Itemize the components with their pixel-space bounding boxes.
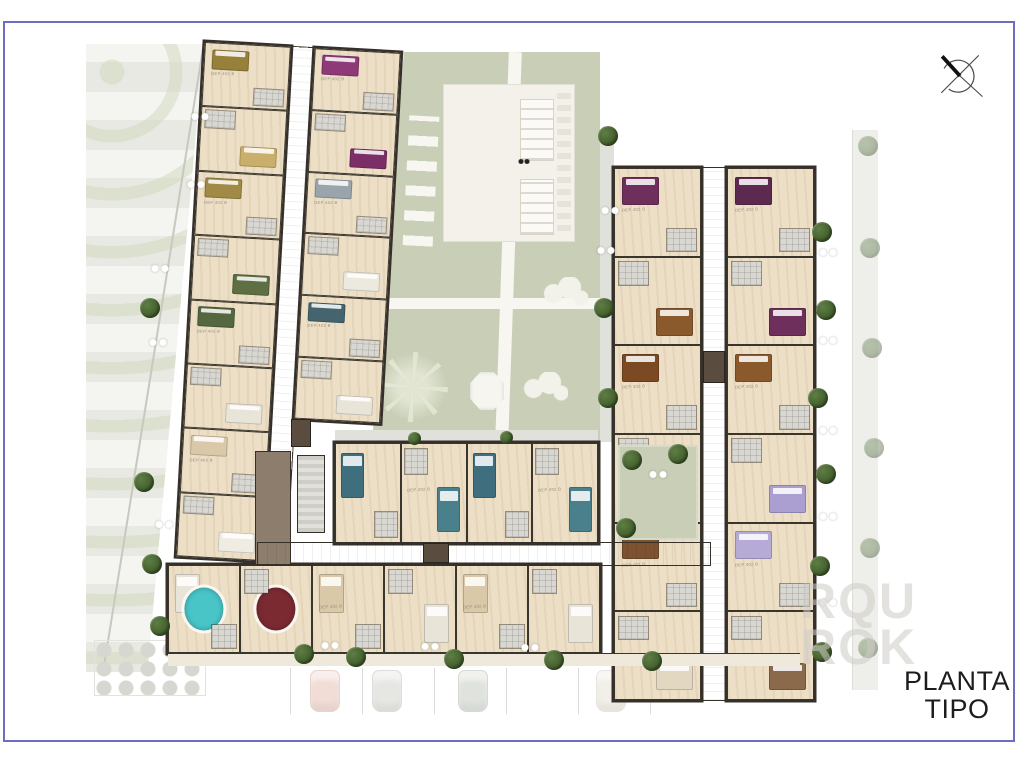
apartment-unit [614, 257, 701, 346]
bed [656, 308, 693, 336]
apartment-unit [183, 363, 272, 432]
balcony-chairs-icon [600, 206, 620, 215]
unit-label: DEP 402 B [189, 457, 212, 462]
amenity-terrace [443, 84, 575, 242]
bathroom-tile [198, 239, 227, 257]
tree-icon [642, 651, 662, 671]
bed [568, 604, 593, 644]
apartment-unit: DEP 402 B [401, 443, 467, 543]
tree-icon [860, 238, 880, 258]
door-markers [518, 159, 530, 164]
bathroom-tile [732, 439, 761, 462]
bathroom-tile [302, 361, 331, 378]
elevator-core [704, 352, 724, 382]
round-rug [256, 588, 295, 631]
bathroom-tile [536, 449, 558, 474]
apartment-unit: DEP 402 B [614, 168, 701, 257]
apartment-unit [301, 233, 390, 300]
stepping-stones [403, 115, 440, 246]
bathroom-tile [667, 406, 696, 429]
bottom-inner-unit-row: DEP 402 BDEP 402 B [335, 443, 598, 543]
apartment-unit: DEP 402 B [532, 443, 598, 543]
unit-label: DEP 402 B [735, 207, 759, 213]
floor-plan-sheet: DEP 402 BDEP 402 BDEP 402 BDEP 402 B DEP… [0, 0, 1024, 768]
tree-icon [812, 222, 832, 242]
bed [239, 146, 277, 168]
bed [211, 49, 249, 71]
tree-icon [816, 464, 836, 484]
apartment-unit [198, 106, 287, 175]
bathroom-tile [350, 340, 379, 357]
unit-label: DEP 402 B [622, 384, 646, 390]
balcony-chairs-icon [190, 112, 210, 121]
bathroom-tile [533, 570, 557, 592]
apartment-unit [240, 565, 312, 653]
balcony-chairs-icon [154, 520, 174, 529]
bed [218, 531, 256, 553]
bed [769, 308, 806, 336]
corridor [701, 168, 727, 700]
bed [190, 435, 228, 457]
bed [343, 271, 381, 292]
tree-icon [668, 444, 688, 464]
apartment-unit [727, 257, 814, 346]
bathroom-tile [667, 229, 696, 252]
apartment-unit [528, 565, 600, 653]
elevator-core [424, 544, 448, 562]
tree-icon [864, 438, 884, 458]
apartment-unit [168, 565, 240, 653]
bathroom-tile [315, 114, 344, 131]
bed [307, 302, 345, 323]
tree-icon [862, 338, 882, 358]
apartment-unit: DEP 402 B [727, 168, 814, 257]
apartment-unit: DEP 402 B [456, 565, 528, 653]
balcony-chairs-icon [596, 246, 616, 255]
bathroom-tile [364, 93, 393, 110]
bed [569, 487, 592, 532]
elevator-core [292, 420, 310, 446]
watermark: RQU ROK [800, 578, 917, 670]
apartment-unit: DEP 402 B [312, 565, 384, 653]
balcony-chairs-icon [186, 180, 206, 189]
car-ghost [310, 670, 340, 712]
unit-label: DEP 402 B [622, 207, 646, 213]
west-unit-column: DEP 402 BDEP 402 BDEP 402 B [614, 168, 701, 700]
tree-icon [860, 538, 880, 558]
bed [350, 148, 388, 169]
bed [437, 487, 460, 532]
unit-label: DEP 402 B [462, 603, 486, 609]
bed [735, 354, 772, 382]
tree-icon [616, 518, 636, 538]
apartment-unit [335, 443, 401, 543]
unit-label: DEP 402 B [307, 323, 330, 328]
round-rug [184, 588, 223, 631]
bathroom-tile [506, 512, 528, 537]
tree-icon [808, 388, 828, 408]
balcony-chairs-icon [420, 642, 440, 651]
bathroom-tile [389, 570, 413, 592]
tree-icon [544, 650, 564, 670]
bed [341, 453, 364, 498]
unit-label: DEP 402 B [735, 561, 759, 567]
unit-label: DEP 402 B [314, 200, 337, 205]
apartment-unit: DEP 402 B [298, 295, 387, 362]
bathroom-tile [191, 368, 220, 386]
terrace-table [520, 179, 554, 235]
balcony-chairs-icon [818, 336, 838, 345]
tree-icon [142, 554, 162, 574]
gazebo [470, 372, 504, 410]
bathroom-tile [184, 496, 213, 514]
page-title-line2: TIPO [898, 696, 1016, 724]
bed [735, 531, 772, 559]
unit-label: DEP 402 B [538, 487, 562, 493]
tree-icon [294, 644, 314, 664]
unit-label: DEP 402 B [211, 71, 234, 76]
tree-icon [444, 649, 464, 669]
bathroom-tile [780, 406, 809, 429]
bed [735, 177, 772, 205]
unit-label: DEP 402 B [318, 603, 342, 609]
tree-icon [500, 431, 513, 444]
apartment-unit: DEP 402 B [187, 299, 276, 368]
north-compass-icon [930, 46, 990, 106]
balcony-chairs-icon [150, 264, 170, 273]
tree-icon [858, 136, 878, 156]
apartment-unit [308, 110, 397, 177]
unit-label: DEP 402 B [204, 200, 227, 205]
tree-icon [134, 472, 154, 492]
tree-icon [140, 298, 160, 318]
bathroom-tile [239, 346, 268, 364]
balcony-chairs-icon [818, 426, 838, 435]
bed [424, 604, 449, 644]
bathroom-tile [254, 89, 283, 107]
watermark-line1: RQU [800, 578, 917, 624]
apartment-unit: DEP 402 B [194, 171, 283, 240]
bed [769, 485, 806, 513]
balcony-chairs-icon [818, 512, 838, 521]
terrace-table [520, 99, 554, 161]
apartment-unit [191, 235, 280, 304]
apartment-unit: DEP 402 B [614, 345, 701, 434]
bed [656, 663, 693, 691]
unit-label: DEP 402 B [197, 329, 220, 334]
bathroom-tile [309, 238, 338, 255]
unit-label: DEP 402 B [735, 384, 759, 390]
car-ghost [372, 670, 402, 712]
bathroom-tile [732, 262, 761, 285]
bed [473, 453, 496, 498]
bed [622, 177, 659, 205]
stair-core [298, 456, 324, 532]
bathroom-tile [732, 617, 761, 640]
bed [204, 178, 242, 200]
bed [321, 55, 359, 76]
bathroom-tile [357, 217, 386, 234]
apartment-unit [176, 492, 265, 561]
tree-icon [598, 388, 618, 408]
bush-icon [522, 372, 568, 402]
unit-label: DEP 402 B [321, 76, 344, 81]
tree-icon [594, 298, 614, 318]
bed [622, 354, 659, 382]
bed [314, 178, 352, 199]
balcony-chairs-icon [818, 248, 838, 257]
unit-label: DEP 402 B [407, 487, 431, 493]
bed [336, 395, 374, 416]
bathroom-tile [212, 625, 236, 647]
bathroom-tile [619, 617, 648, 640]
balcony-chairs-icon [520, 643, 540, 652]
tree-icon [150, 616, 170, 636]
balcony-chairs-icon [648, 470, 668, 479]
balcony-strip [168, 653, 800, 666]
bathroom-tile [245, 570, 269, 592]
apartment-unit: DEP 402 B [311, 48, 400, 115]
balcony-chairs-icon [148, 338, 168, 347]
bed [232, 274, 270, 296]
palm-tree-icon [378, 352, 448, 422]
car-ghost [458, 670, 488, 712]
lounger-row [557, 93, 571, 233]
apartment-unit: DEP 402 B [727, 345, 814, 434]
balcony-chairs-icon [320, 641, 340, 650]
apartment-unit [384, 565, 456, 653]
apartment-unit [294, 357, 383, 424]
apartment-unit [467, 443, 533, 543]
bathroom-tile [375, 512, 397, 537]
bed [197, 306, 235, 328]
apartment-unit: DEP 402 B [304, 172, 393, 239]
bathroom-tile [780, 229, 809, 252]
tree-icon [816, 300, 836, 320]
corridor [258, 543, 710, 565]
tree-icon [408, 432, 421, 445]
bathroom-tile [405, 449, 427, 474]
tree-icon [622, 450, 642, 470]
bush-icon [542, 277, 588, 307]
tree-icon [598, 126, 618, 146]
apartment-unit [727, 434, 814, 523]
bathroom-tile [667, 584, 696, 607]
bottom-outer-unit-row: DEP 402 BDEP 402 B [168, 565, 600, 653]
right-apartment-wing: DEP 402 BDEP 402 BDEP 402 B DEP 402 BDEP… [614, 168, 814, 700]
apartment-unit: DEP 402 B [201, 42, 290, 111]
bathroom-tile [619, 262, 648, 285]
bathroom-tile [356, 625, 380, 647]
bed [225, 403, 263, 425]
tree-icon [346, 647, 366, 667]
bathroom-tile [247, 217, 276, 235]
watermark-line2: ROK [800, 624, 917, 670]
page-title: PLANTA TIPO [898, 668, 1016, 724]
